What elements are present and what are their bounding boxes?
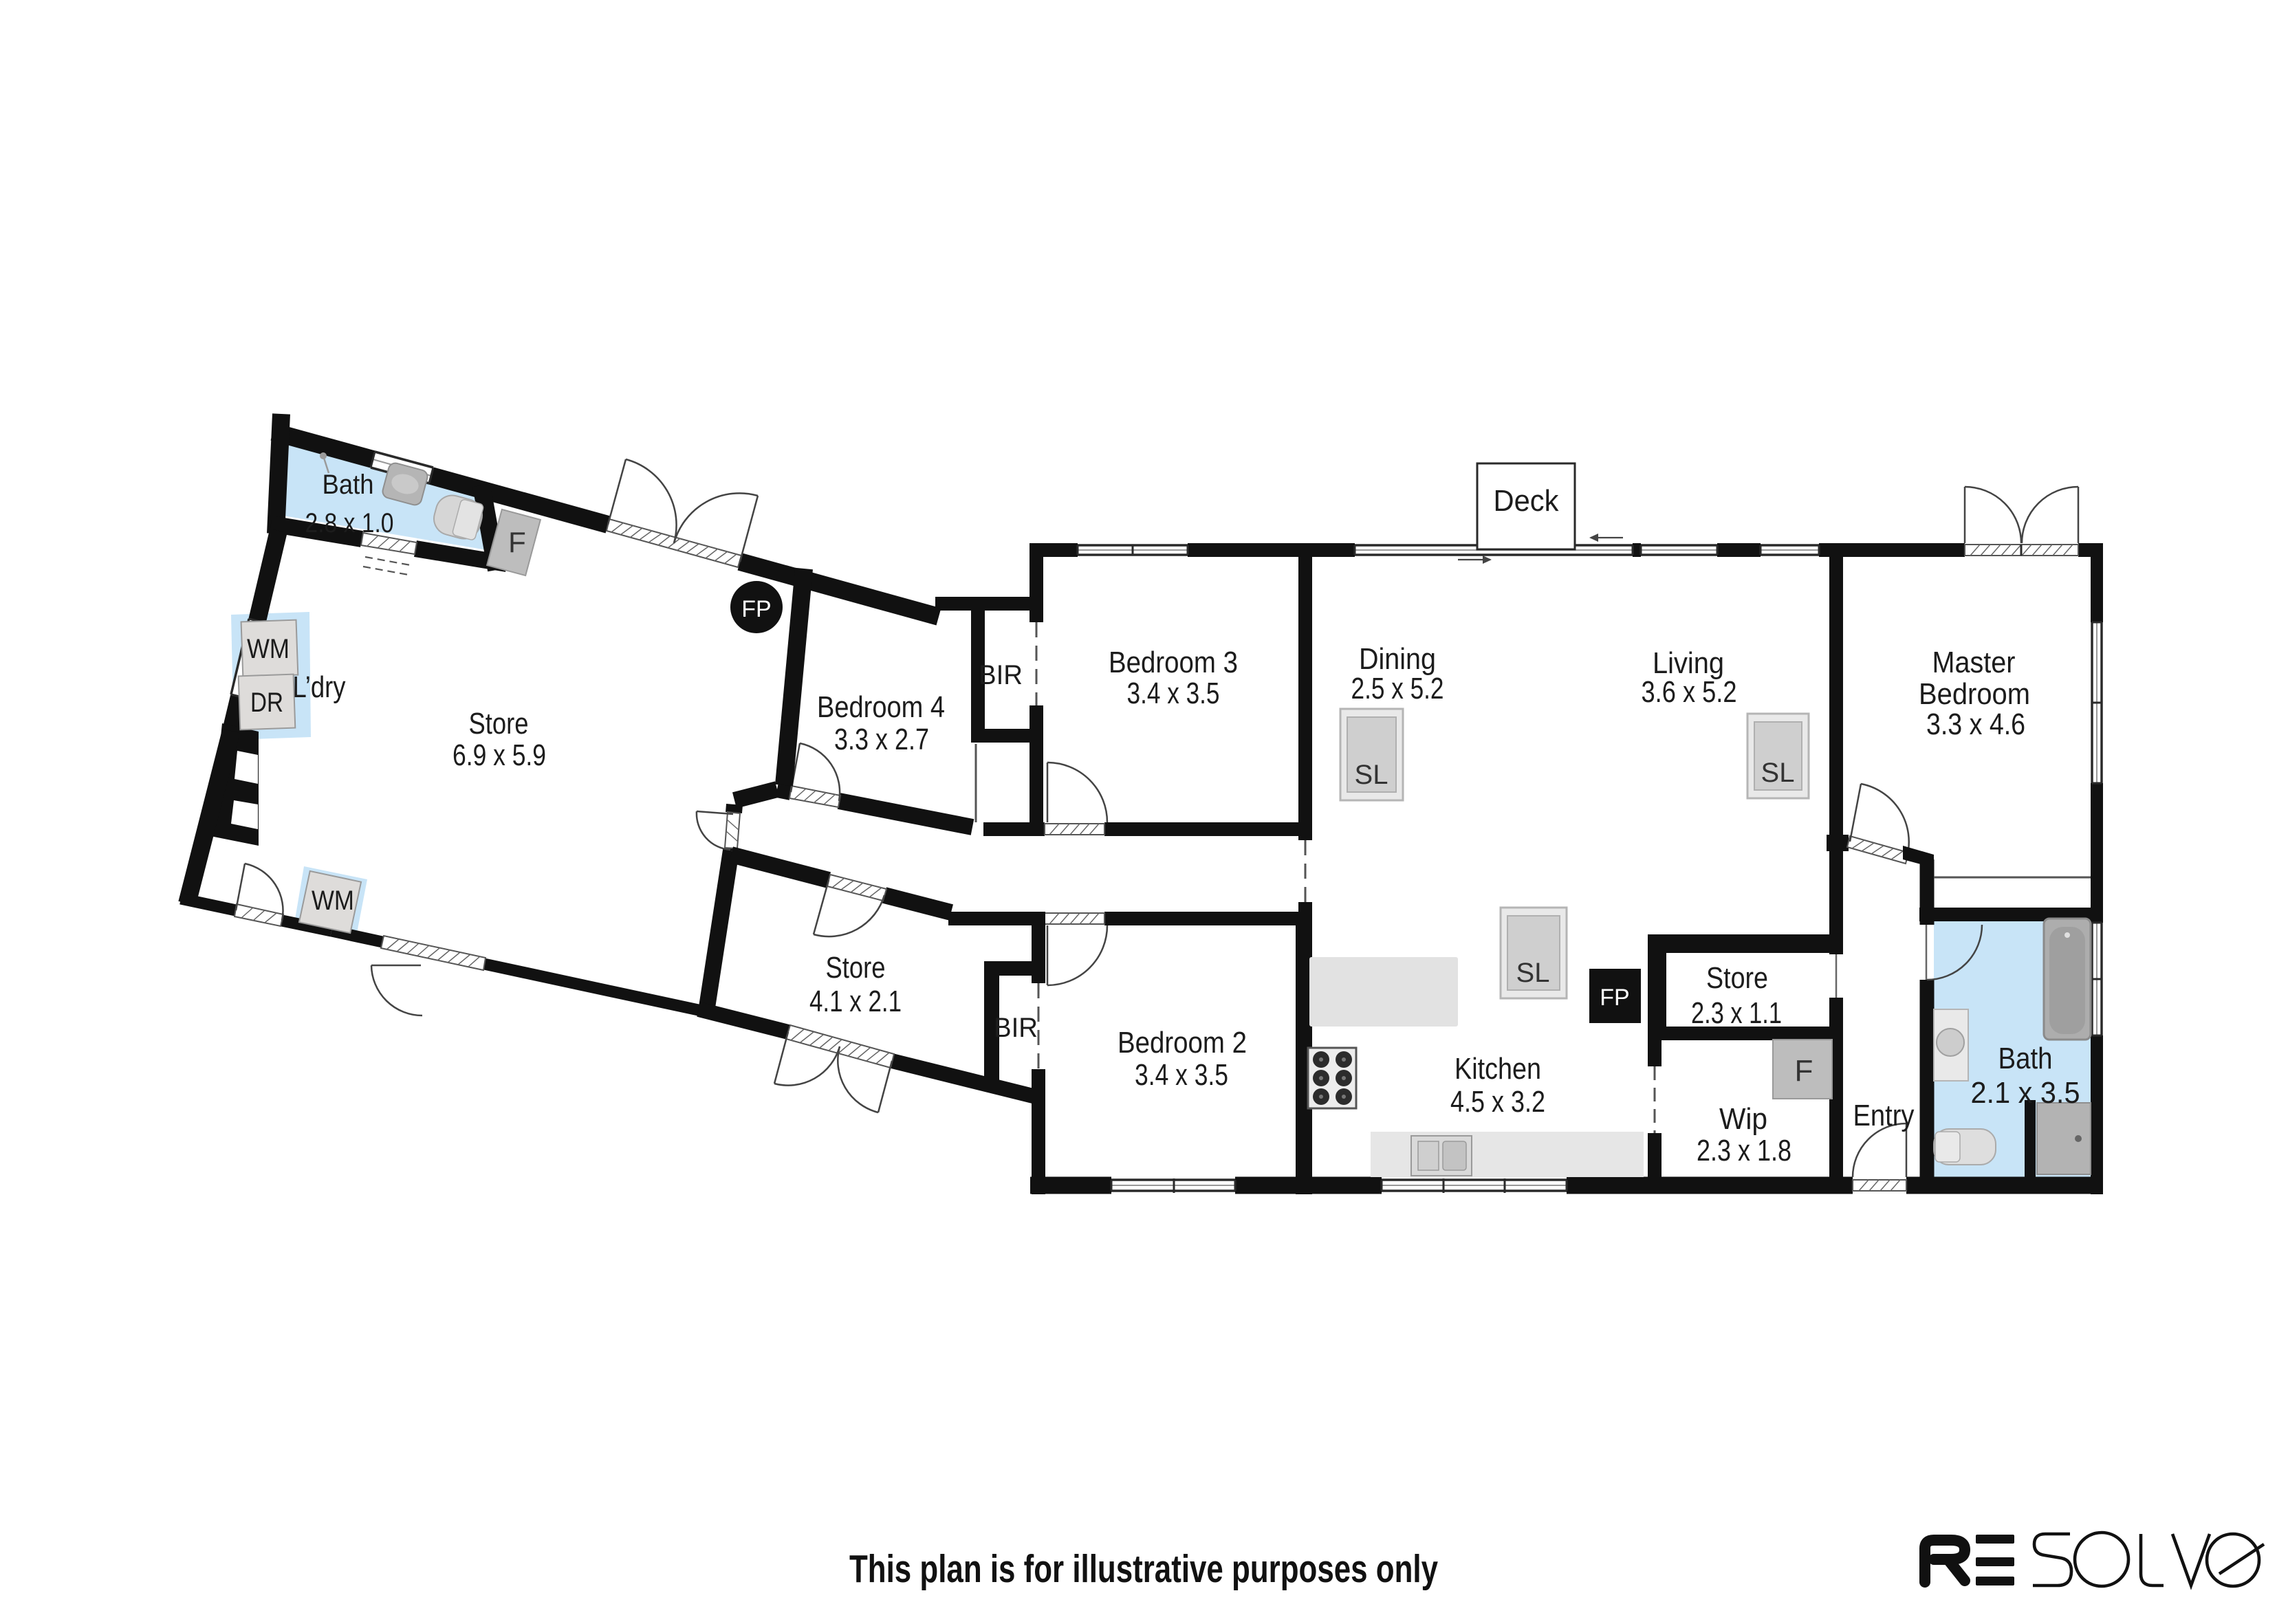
svg-text:2.3 x 1.8: 2.3 x 1.8 bbox=[1697, 1134, 1791, 1167]
svg-text:BIR: BIR bbox=[994, 1013, 1038, 1043]
svg-text:SL: SL bbox=[1355, 760, 1388, 790]
svg-text:Dining: Dining bbox=[1359, 642, 1436, 676]
svg-text:WM: WM bbox=[312, 886, 354, 916]
svg-text:2.3 x 1.1: 2.3 x 1.1 bbox=[1691, 996, 1782, 1030]
svg-text:FP: FP bbox=[1600, 985, 1629, 1011]
svg-text:F: F bbox=[508, 526, 526, 558]
svg-text:BIR: BIR bbox=[979, 660, 1023, 690]
svg-text:DR: DR bbox=[250, 688, 283, 718]
svg-text:2.8 x 1.0: 2.8 x 1.0 bbox=[305, 508, 394, 538]
svg-text:3.3 x 2.7: 3.3 x 2.7 bbox=[834, 723, 929, 756]
svg-text:Bath: Bath bbox=[323, 470, 374, 500]
svg-text:Store: Store bbox=[469, 707, 529, 740]
svg-text:Bedroom 3: Bedroom 3 bbox=[1109, 646, 1238, 679]
svg-text:Wip: Wip bbox=[1719, 1102, 1767, 1136]
svg-text:3.4 x 3.5: 3.4 x 3.5 bbox=[1135, 1058, 1228, 1092]
svg-text:Master: Master bbox=[1932, 646, 2016, 679]
svg-text:6.9 x 5.9: 6.9 x 5.9 bbox=[453, 738, 546, 772]
svg-text:Deck: Deck bbox=[1494, 484, 1560, 518]
svg-text:4.1 x 2.1: 4.1 x 2.1 bbox=[809, 985, 902, 1018]
svg-text:L’dry: L’dry bbox=[293, 670, 346, 704]
svg-text:Bedroom 2: Bedroom 2 bbox=[1118, 1026, 1247, 1060]
svg-text:This plan is for illustrative: This plan is for illustrative purposes o… bbox=[849, 1547, 1438, 1591]
svg-text:3.3 x 4.6: 3.3 x 4.6 bbox=[1926, 707, 2025, 741]
svg-text:Bedroom: Bedroom bbox=[1919, 677, 2030, 711]
svg-text:3.4 x 3.5: 3.4 x 3.5 bbox=[1127, 677, 1220, 710]
svg-text:SL: SL bbox=[1516, 958, 1550, 988]
svg-text:2.1 x 3.5: 2.1 x 3.5 bbox=[1971, 1076, 2080, 1110]
svg-text:FP: FP bbox=[741, 596, 771, 622]
svg-text:2.5 x 5.2: 2.5 x 5.2 bbox=[1351, 672, 1444, 705]
svg-text:WM: WM bbox=[247, 634, 290, 664]
svg-text:Bath: Bath bbox=[1998, 1042, 2053, 1075]
svg-text:4.5 x 3.2: 4.5 x 3.2 bbox=[1450, 1085, 1545, 1119]
svg-text:Store: Store bbox=[826, 951, 886, 985]
svg-text:F: F bbox=[1795, 1054, 1813, 1088]
svg-text:Bedroom 4: Bedroom 4 bbox=[817, 690, 945, 724]
svg-text:3.6 x 5.2: 3.6 x 5.2 bbox=[1642, 675, 1737, 709]
svg-text:Store: Store bbox=[1706, 961, 1768, 995]
svg-text:SL: SL bbox=[1761, 758, 1795, 788]
svg-text:Kitchen: Kitchen bbox=[1454, 1052, 1541, 1086]
svg-text:Entry: Entry bbox=[1853, 1099, 1915, 1132]
